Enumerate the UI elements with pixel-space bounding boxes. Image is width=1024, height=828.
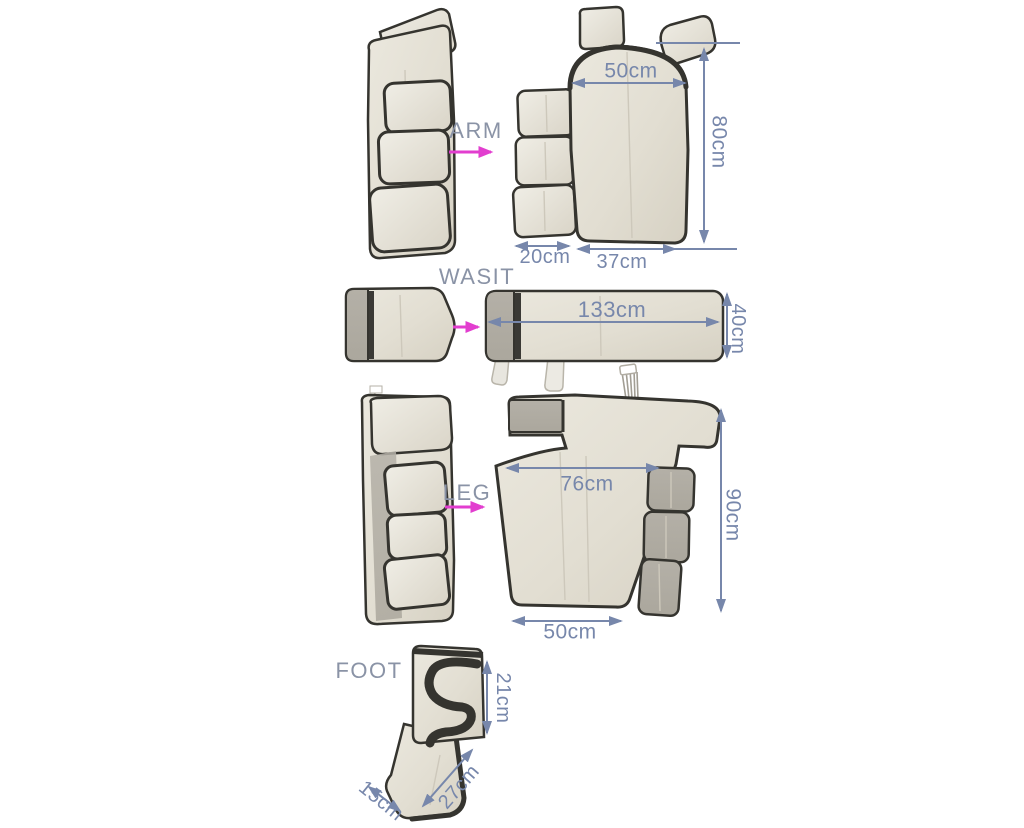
arm-top-width-value: 50cm (604, 61, 657, 82)
arm-height-value: 80cm (709, 115, 730, 168)
leg-tube-5 (637, 372, 638, 399)
arm-shoulder-tab-left (580, 7, 624, 49)
foot-label: FOOT (335, 660, 402, 682)
leg-folded-garment (362, 386, 454, 624)
leg-waistband-velcro (509, 400, 563, 432)
arm-flap-crease-3 (544, 191, 545, 231)
leg-tube-1 (622, 372, 626, 399)
arm-flap-width-value: 20cm (520, 247, 571, 267)
arm-folded-strap-flap-3 (369, 183, 451, 252)
waist-unfolded-strap (515, 293, 521, 359)
leg-upper-width-value: 76cm (560, 474, 613, 495)
waist-label: WASIT (439, 266, 515, 288)
arm-folded-strap-flap-1 (384, 80, 453, 133)
waist-folded-velcro-end (346, 289, 368, 361)
leg-folded-strap-flap-2 (387, 513, 447, 560)
arm-folded-strap-flap-2 (378, 130, 450, 184)
leg-folded-strap-flap-1 (384, 461, 448, 516)
leg-tube-4 (634, 370, 635, 399)
waist-length-value: 133cm (578, 299, 647, 321)
waist-height-value: 40cm (728, 304, 748, 355)
leg-bottom-width-value: 50cm (543, 622, 596, 643)
waist-hose-tab-2 (545, 358, 564, 391)
leg-folded-top-flap (371, 396, 452, 454)
leg-folded-strap-flap-3 (384, 554, 451, 610)
leg-label: LEG (443, 482, 492, 504)
leg-height-value: 90cm (723, 488, 744, 541)
foot-height-value: 21cm (493, 673, 513, 724)
waist-unfolded-velcro-end (486, 291, 514, 361)
arm-body-width-value: 37cm (597, 252, 648, 272)
leg-folded-tube-connector (370, 386, 382, 393)
waist-folded-garment (346, 288, 455, 361)
leg-flap-crease-3 (659, 564, 660, 611)
waist-folded-strap (369, 291, 374, 359)
arm-folded-garment (368, 9, 455, 258)
product-dimension-diagram: ARM 50cm 80cm 20cm 37cm WASIT 133cm 40cm… (0, 0, 1024, 828)
arm-flap-crease-2 (545, 142, 546, 180)
arm-label: ARM (449, 120, 502, 142)
leg-tube-connector (620, 364, 637, 375)
foot-top-binding (413, 651, 483, 655)
arm-flap-crease-1 (546, 95, 547, 132)
